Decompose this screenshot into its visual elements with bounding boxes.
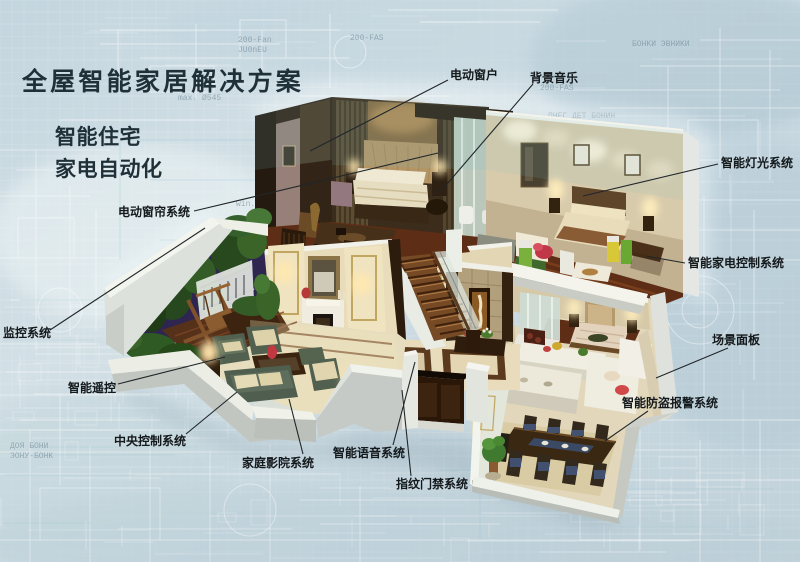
svg-text:智能防盗报警系统: 智能防盗报警系统: [621, 395, 718, 410]
svg-text:智能住宅: 智能住宅: [55, 125, 141, 149]
svg-text:200-FAS: 200-FAS: [540, 84, 574, 93]
svg-text:智能灯光系统: 智能灯光系统: [720, 155, 793, 170]
svg-text:家庭影院系统: 家庭影院系统: [242, 455, 314, 470]
svg-text:200-FAS: 200-FAS: [350, 34, 384, 43]
svg-text:БOHKИ ЭBHИKИ: БOHKИ ЭBHИKИ: [632, 40, 690, 49]
svg-text:背景音乐: 背景音乐: [530, 70, 578, 85]
svg-text:中央控制系统: 中央控制系统: [114, 433, 186, 448]
svg-text:全屋智能家居解决方案: 全屋智能家居解决方案: [21, 67, 304, 96]
svg-text:ЭОHУ-БОHK: ЭОHУ-БОHK: [10, 452, 53, 461]
svg-text:智能家电控制系统: 智能家电控制系统: [687, 255, 784, 270]
svg-text:场景面板: 场景面板: [712, 332, 761, 347]
svg-text:200-Fan: 200-Fan: [238, 36, 272, 45]
svg-text:指纹门禁系统: 指纹门禁系统: [396, 476, 468, 491]
svg-text:电动窗户: 电动窗户: [450, 67, 498, 82]
svg-text:家电自动化: 家电自动化: [55, 157, 163, 181]
svg-text:电动窗帘系统: 电动窗帘系统: [118, 204, 190, 219]
svg-text:智能遥控: 智能遥控: [67, 380, 116, 395]
svg-text:JU0nEU: JU0nEU: [238, 46, 267, 55]
svg-text:监控系统: 监控系统: [3, 325, 51, 340]
svg-text:智能语音系统: 智能语音系统: [332, 445, 405, 460]
svg-text:ДОЯ БОHИ: ДОЯ БОHИ: [10, 442, 49, 451]
